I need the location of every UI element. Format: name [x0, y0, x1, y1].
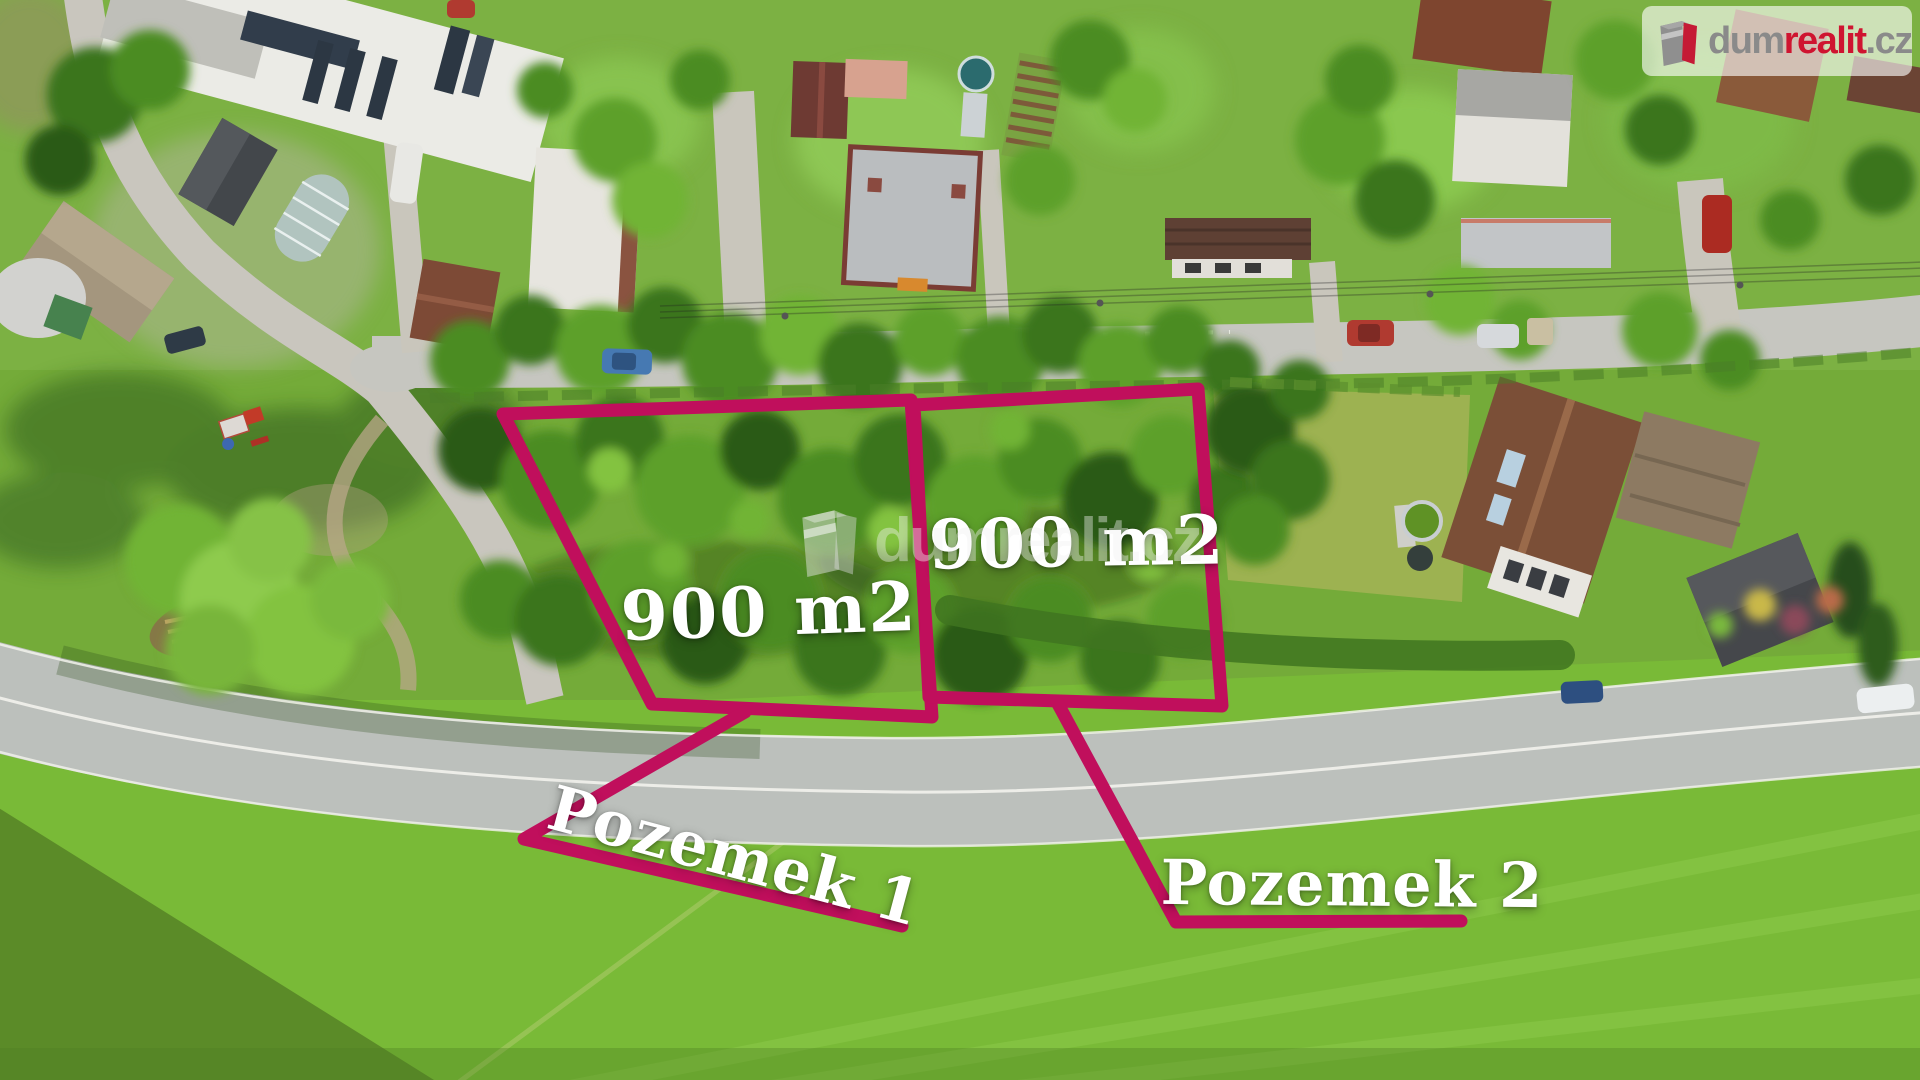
dumrealit-logo: dumrealit.cz: [1642, 6, 1912, 76]
logo-text-cz: .cz: [1866, 20, 1912, 62]
red-car-top: [447, 0, 475, 18]
watermark-house-icon: [790, 500, 864, 580]
gray-salmon-house: [1461, 218, 1611, 268]
plot2-name-label: Pozemek 2: [1160, 846, 1543, 922]
silver-car: [1477, 324, 1519, 348]
trailer: [1527, 318, 1553, 345]
plot1-area-label: 900 m2: [619, 567, 919, 657]
logo-text-realit: realit: [1784, 20, 1866, 62]
gray-roof-house: [844, 147, 981, 292]
center-watermark: dumrealit.cz: [790, 500, 1200, 580]
dark-blue-car: [1560, 680, 1603, 704]
logo-text-dum: dum: [1708, 20, 1784, 62]
brown-corrugated-house: [1165, 218, 1311, 278]
watermark-text: dumrealit.cz: [874, 505, 1200, 576]
dumrealit-logo-icon: [1652, 13, 1702, 69]
parked-red-car: [1702, 195, 1732, 253]
aerial-photo-listing: 900 m2 900 m2 Pozemek 1 Pozemek 2 dumrea…: [0, 0, 1920, 1080]
